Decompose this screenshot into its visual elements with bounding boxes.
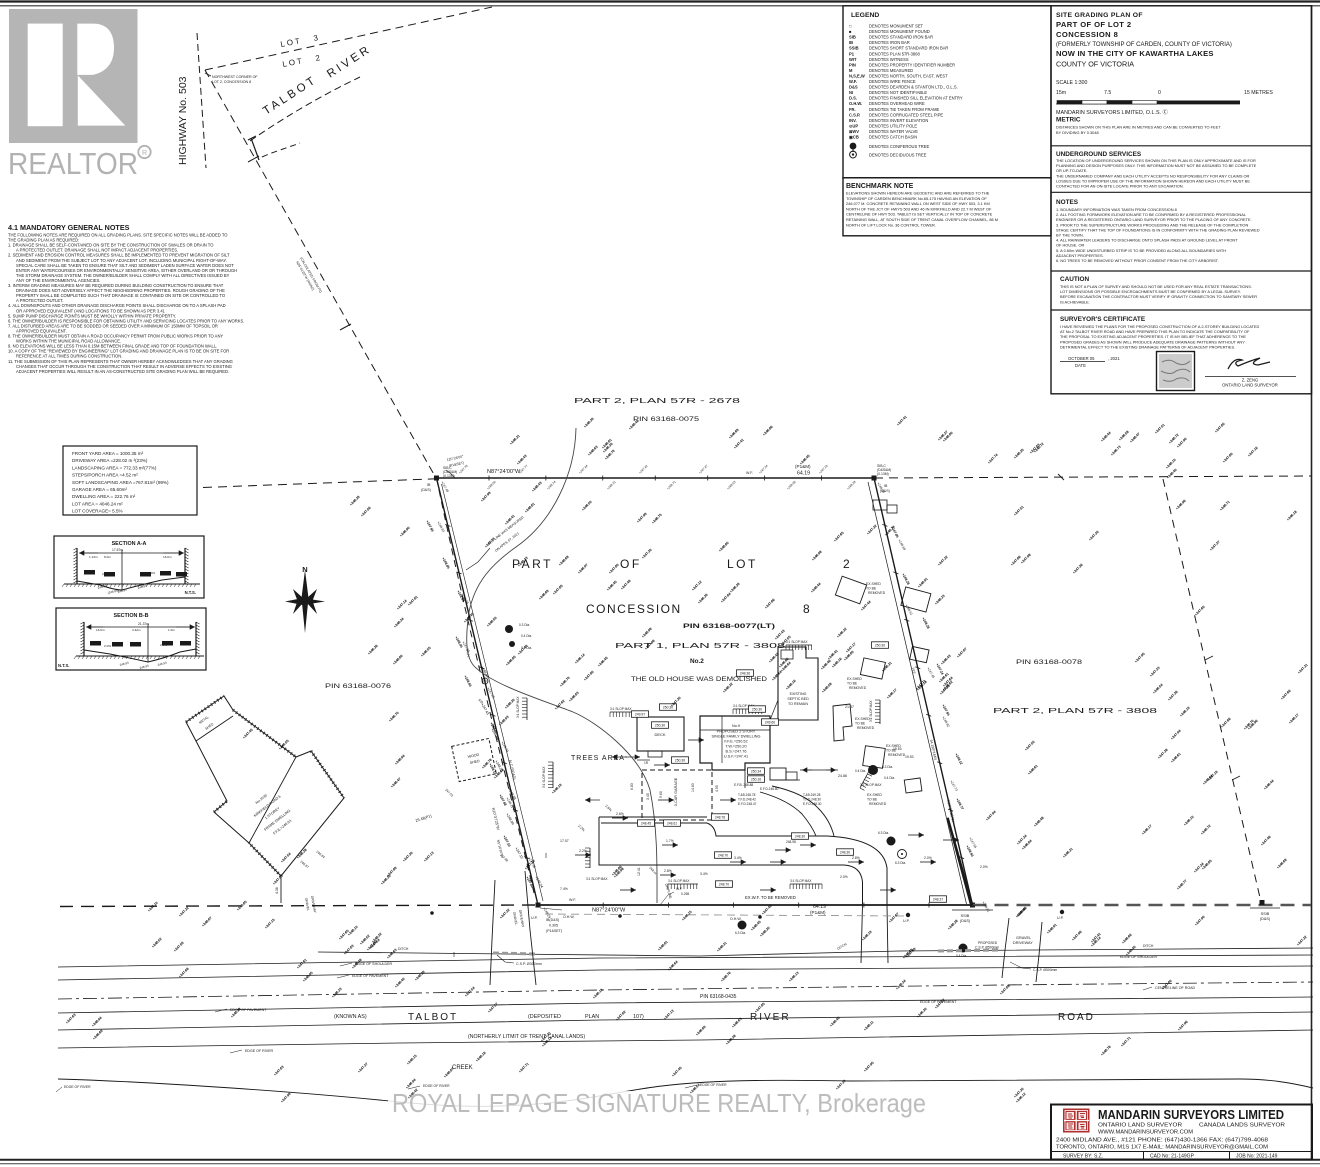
svg-text:+247.32: +247.32 xyxy=(499,908,511,920)
svg-text:250.16: 250.16 xyxy=(751,778,761,782)
svg-text:2.2%: 2.2% xyxy=(579,849,587,853)
svg-text:+248.28: +248.28 xyxy=(947,919,959,931)
svg-text:+248.98: +248.98 xyxy=(613,867,625,879)
svg-text:25.48(P1): 25.48(P1) xyxy=(415,814,433,823)
svg-text:+247.77: +247.77 xyxy=(518,464,529,475)
svg-text:CONCESSION 8: CONCESSION 8 xyxy=(1056,30,1118,39)
svg-text:+248.48: +248.48 xyxy=(1033,816,1045,828)
svg-text:UNDERGROUND SERVICES: UNDERGROUND SERVICES xyxy=(1056,151,1142,158)
svg-text:+247.73: +247.73 xyxy=(949,780,959,793)
svg-text:+247.90: +247.90 xyxy=(1194,915,1206,927)
svg-text:TO BE: TO BE xyxy=(847,682,858,686)
svg-text:+248.16: +248.16 xyxy=(831,657,843,669)
svg-text:19.53: 19.53 xyxy=(893,747,902,751)
svg-text:M: M xyxy=(849,68,853,73)
svg-text:B.S.=247.76: B.S.=247.76 xyxy=(725,750,746,754)
svg-text:BY DIVIDING BY 0.3048: BY DIVIDING BY 0.3048 xyxy=(1056,130,1099,135)
svg-text:DRIVEWAY: DRIVEWAY xyxy=(518,909,525,928)
svg-text:+246.20: +246.20 xyxy=(916,1007,928,1019)
svg-text:TALBOT: TALBOT xyxy=(261,74,319,118)
svg-text:□: □ xyxy=(849,24,852,29)
svg-text:+246.26: +246.26 xyxy=(367,644,379,656)
svg-text:+248.72: +248.72 xyxy=(1200,824,1212,836)
svg-text:1.0m: 1.0m xyxy=(168,628,175,632)
svg-text:0.3 Dia.: 0.3 Dia. xyxy=(519,623,530,627)
svg-text:+247.60: +247.60 xyxy=(1194,605,1206,617)
svg-text:+246.22: +246.22 xyxy=(836,627,848,639)
svg-text:DITCH: DITCH xyxy=(398,947,409,951)
svg-text:WOOD: WOOD xyxy=(467,753,480,759)
svg-text:EDGE OF RIVER: EDGE OF RIVER xyxy=(700,1083,727,1087)
svg-text:+247.44: +247.44 xyxy=(860,600,872,612)
svg-text:DENOTES PLAN 57R-3808: DENOTES PLAN 57R-3808 xyxy=(869,51,920,56)
svg-text:6.83: 6.83 xyxy=(630,783,634,790)
svg-text:+247.51: +247.51 xyxy=(1154,423,1166,435)
svg-text:+248.69: +248.69 xyxy=(897,539,907,552)
svg-text:21.37: 21.37 xyxy=(845,705,854,709)
svg-text:248.98: 248.98 xyxy=(786,840,796,844)
svg-text:2.8%: 2.8% xyxy=(664,869,672,873)
svg-text:+247.37: +247.37 xyxy=(357,1062,369,1074)
svg-text:SSIB: SSIB xyxy=(1261,912,1270,916)
svg-text:2.2%: 2.2% xyxy=(577,824,585,832)
svg-text:+248.31: +248.31 xyxy=(606,480,617,491)
svg-text:ELEVATIONS SHOWN HEREON ARE GE: ELEVATIONS SHOWN HEREON ARE GEODETIC AND… xyxy=(846,191,990,196)
svg-text:C.S.P. Ø500mm: C.S.P. Ø500mm xyxy=(975,946,999,950)
svg-text:INV.: INV. xyxy=(849,118,857,123)
svg-text:+247.80: +247.80 xyxy=(583,670,595,682)
svg-text:E.F.D.248.30: E.F.D.248.30 xyxy=(803,802,822,806)
svg-text:+246.15: +246.15 xyxy=(681,910,693,922)
svg-text:EX.SHED: EX.SHED xyxy=(847,677,862,681)
svg-text:REALTOR: REALTOR xyxy=(8,146,138,181)
svg-text:3.4%: 3.4% xyxy=(700,872,708,876)
svg-text:+248.71: +248.71 xyxy=(1219,500,1231,512)
svg-text:SHED: SHED xyxy=(469,759,480,765)
svg-text:+247.95: +247.95 xyxy=(272,874,284,886)
svg-text:246.93: 246.93 xyxy=(139,664,149,670)
svg-text:16.0m: 16.0m xyxy=(96,628,105,632)
svg-text:+247.85: +247.85 xyxy=(552,584,564,596)
svg-text:O.H.W.: O.H.W. xyxy=(563,915,575,919)
svg-text:ONTARIO LAND SURVEYOR: ONTARIO LAND SURVEYOR xyxy=(1098,1123,1182,1129)
svg-text:+248.34: +248.34 xyxy=(393,617,405,629)
svg-text:MANDARIN SURVEYORS LIMITED, O.: MANDARIN SURVEYORS LIMITED, O.L.S. Ⓒ xyxy=(1056,108,1169,116)
svg-text:DECK: DECK xyxy=(654,732,665,737)
svg-text:+248.39: +248.39 xyxy=(583,417,595,429)
svg-text:24.86: 24.86 xyxy=(838,774,847,778)
svg-text:+246.13: +246.13 xyxy=(788,971,800,983)
svg-text:+248.95: +248.95 xyxy=(302,971,314,983)
svg-text:+247.23: +247.23 xyxy=(939,684,951,696)
svg-text:METAL: METAL xyxy=(198,715,209,725)
svg-text:FR.: FR. xyxy=(849,107,856,112)
svg-text:+247.83: +247.83 xyxy=(343,944,355,956)
svg-text:PIN 63168-0075: PIN 63168-0075 xyxy=(633,416,699,423)
svg-text:+247.49: +247.49 xyxy=(620,579,632,591)
svg-text:DENOTES OVERHEAD WIRE: DENOTES OVERHEAD WIRE xyxy=(869,101,925,106)
svg-text:+248.16: +248.16 xyxy=(785,679,797,691)
svg-text:GRAVEL: GRAVEL xyxy=(512,911,518,925)
svg-text:+248.85: +248.85 xyxy=(236,900,248,912)
svg-text:No.9: No.9 xyxy=(732,724,740,728)
svg-text:+247.50: +247.50 xyxy=(1024,740,1036,752)
svg-text:W.F.: W.F. xyxy=(746,471,753,475)
svg-text:3:1 SLOP MAX: 3:1 SLOP MAX xyxy=(869,700,873,722)
svg-text:+248.28: +248.28 xyxy=(901,573,910,586)
svg-text:4.42m: 4.42m xyxy=(132,628,141,632)
svg-text:+248.80: +248.80 xyxy=(392,654,404,666)
svg-text:E.F.D.248.80: E.F.D.248.80 xyxy=(760,787,779,791)
svg-text:+247.54: +247.54 xyxy=(464,986,476,998)
svg-text:+248.28: +248.28 xyxy=(846,480,857,491)
svg-text:+248.16: +248.16 xyxy=(475,1051,487,1063)
svg-text:N,S,E,W: N,S,E,W xyxy=(849,73,865,78)
svg-text:REMOVED: REMOVED xyxy=(849,686,867,690)
svg-text:+248.69: +248.69 xyxy=(786,480,797,491)
svg-text:246.077 M. CONCRETE RETAINING: 246.077 M. CONCRETE RETAINING WALL ON WE… xyxy=(846,201,990,206)
svg-text:250.30: 250.30 xyxy=(655,724,665,728)
svg-text:+246.45: +246.45 xyxy=(606,580,618,592)
svg-text:EDGE OF RIVER: EDGE OF RIVER xyxy=(64,1085,91,1089)
svg-text:, 2021: , 2021 xyxy=(1108,356,1120,361)
svg-text:MANDARIN SURVEYORS LIMITED: MANDARIN SURVEYORS LIMITED xyxy=(1098,1108,1284,1122)
svg-text:+247.24: +247.24 xyxy=(758,464,769,475)
svg-text:+248.40: +248.40 xyxy=(394,977,406,989)
svg-text:+246.39: +246.39 xyxy=(729,582,741,594)
svg-text:T.&B.248.78: T.&B.248.78 xyxy=(738,793,756,797)
svg-text:+246.96: +246.96 xyxy=(1175,499,1187,511)
svg-text:+248.66: +248.66 xyxy=(463,675,472,688)
svg-text:EX.SHED: EX.SHED xyxy=(866,582,881,586)
svg-text:PROPOSED: PROPOSED xyxy=(978,941,998,945)
svg-text:+247.59: +247.59 xyxy=(425,520,434,533)
svg-text:2.6%: 2.6% xyxy=(616,812,624,816)
svg-text:PART 2, PLAN 57R - 267: PART 2, PLAN 57R - 2678 xyxy=(574,396,740,405)
svg-text:LEGEND: LEGEND xyxy=(851,12,879,19)
svg-text:+247.22: +247.22 xyxy=(178,906,190,918)
svg-text:+248.56: +248.56 xyxy=(486,480,497,491)
svg-text:+247.51: +247.51 xyxy=(1013,505,1025,517)
svg-text:2400 MIDLAND AVE., #121: 2400 MIDLAND AVE., #121 PHONE: (647)430-… xyxy=(1056,1138,1268,1144)
svg-text:FRONT YARD AREA = 1000.35 m²: FRONT YARD AREA = 1000.35 m² xyxy=(72,451,144,456)
svg-text:4.38: 4.38 xyxy=(275,887,279,894)
svg-text:+248.25: +248.25 xyxy=(1013,448,1025,460)
svg-text:3:1 SLOP MAX: 3:1 SLOP MAX xyxy=(610,707,632,711)
svg-text:(P1&M): (P1&M) xyxy=(795,464,811,469)
svg-text:3-CAR GARAGE: 3-CAR GARAGE xyxy=(674,777,678,806)
svg-text:SINGLE FAMILY DWELLING: SINGLE FAMILY DWELLING xyxy=(711,735,760,739)
svg-text:2: 2 xyxy=(843,557,850,571)
svg-text:+248.44: +248.44 xyxy=(810,582,822,594)
svg-text:CANADA LANDS SURVEYOR: CANADA LANDS SURVEYOR xyxy=(1199,1123,1285,1129)
svg-text:D.S.: D.S. xyxy=(849,96,857,101)
svg-text:No.3530: No.3530 xyxy=(255,793,268,805)
svg-text:C.S.P. Ø300mm: C.S.P. Ø300mm xyxy=(516,962,542,966)
svg-text:DRIPLINE: DRIPLINE xyxy=(664,883,673,900)
svg-text:15 METRES: 15 METRES xyxy=(1244,90,1273,96)
svg-text:+246.50: +246.50 xyxy=(581,500,593,512)
svg-text:⊙UP: ⊙UP xyxy=(849,123,858,128)
svg-text:3:1 SLOP MAX: 3:1 SLOP MAX xyxy=(860,783,882,787)
svg-text:+246.21: +246.21 xyxy=(881,661,893,673)
svg-text:+247.66: +247.66 xyxy=(1280,689,1292,701)
svg-text:WWW.MANDARINSURVEYOR.COM: WWW.MANDARINSURVEYOR.COM xyxy=(1098,1130,1193,1136)
svg-text:EX.SHED: EX.SHED xyxy=(867,793,882,797)
svg-text:T.F.D.248.30: T.F.D.248.30 xyxy=(803,798,821,802)
svg-text:+246.63: +246.63 xyxy=(386,948,398,960)
svg-text:+248.14: +248.14 xyxy=(1090,936,1102,948)
svg-text:+247.94: +247.94 xyxy=(1170,729,1182,741)
svg-text:+248.71: +248.71 xyxy=(666,480,677,491)
svg-text:+246.61: +246.61 xyxy=(1170,752,1182,764)
svg-text:+246.73: +246.73 xyxy=(1110,445,1122,457)
svg-text:+246.21: +246.21 xyxy=(509,434,521,446)
svg-text:REMOVED: REMOVED xyxy=(857,726,875,730)
svg-text:+246.43: +246.43 xyxy=(940,654,952,666)
svg-text:DENOTES DEARDEN & STANTON LTD.: DENOTES DEARDEN & STANTON LTD., O.L.S. xyxy=(869,85,958,90)
svg-text:+247.47: +247.47 xyxy=(698,464,709,475)
svg-text:DENOTES NOT IDENTIFIABLE: DENOTES NOT IDENTIFIABLE xyxy=(869,90,927,95)
svg-text:+246.45: +246.45 xyxy=(597,656,609,668)
svg-text:DISTANCES SHOWN ON THIS PLAN A: DISTANCES SHOWN ON THIS PLAN ARE IN METR… xyxy=(1056,125,1221,130)
svg-text:DENOTES DECIDUOUS TREE: DENOTES DECIDUOUS TREE xyxy=(869,153,927,158)
svg-text:EDGE OF RIVER: EDGE OF RIVER xyxy=(245,1049,274,1053)
svg-text:SURVEY BY: S.Z.: SURVEY BY: S.Z. xyxy=(1063,1154,1103,1160)
svg-text:3:1 SLOP MAX: 3:1 SLOP MAX xyxy=(790,879,812,883)
svg-text:DRIVEWAY: DRIVEWAY xyxy=(1013,941,1033,945)
svg-text:CONCESSION: CONCESSION xyxy=(586,602,682,616)
svg-text:LOT: LOT xyxy=(727,557,758,571)
svg-text:DITCH: DITCH xyxy=(1143,944,1154,948)
svg-text:PART OF OF LOT 2: PART OF OF LOT 2 xyxy=(1056,20,1131,29)
svg-text:3: 3 xyxy=(313,33,320,43)
svg-text:+248.93: +248.93 xyxy=(498,715,510,727)
svg-text:U.S.F.=247.41: U.S.F.=247.41 xyxy=(724,755,748,759)
svg-text:247.03: 247.03 xyxy=(444,788,454,798)
svg-text:+247.77: +247.77 xyxy=(484,537,496,549)
svg-text:+247.14: +247.14 xyxy=(396,599,408,611)
svg-text:+247.15: +247.15 xyxy=(264,918,276,930)
svg-text:14.63: 14.63 xyxy=(691,783,695,792)
svg-text:DENOTES CONIFEROUS TREE: DENOTES CONIFEROUS TREE xyxy=(869,144,929,149)
svg-text:TALBOT: TALBOT xyxy=(408,1012,458,1023)
svg-text:+247.65: +247.65 xyxy=(833,531,845,543)
svg-text:+247.19: +247.19 xyxy=(1207,770,1219,782)
svg-text:U.P.: U.P. xyxy=(531,916,538,920)
svg-text:DENOTES MONUMENT SET: DENOTES MONUMENT SET xyxy=(869,24,924,29)
svg-text:+248.91: +248.91 xyxy=(917,577,929,589)
svg-text:1.13m: 1.13m xyxy=(89,555,98,559)
svg-text:+246.47: +246.47 xyxy=(390,777,402,789)
svg-text:+247.19: +247.19 xyxy=(818,464,829,475)
svg-text:+246.97: +246.97 xyxy=(577,563,589,575)
svg-text:+248.17: +248.17 xyxy=(1288,713,1300,725)
svg-text:W.F.: W.F. xyxy=(849,79,857,84)
svg-text:8.0m: 8.0m xyxy=(104,555,111,559)
svg-text:+247.63: +247.63 xyxy=(65,1013,77,1025)
svg-text:3:1 SLOP MAX: 3:1 SLOP MAX xyxy=(586,877,608,881)
svg-text:(P1&SET): (P1&SET) xyxy=(546,929,562,933)
svg-text:+247.88: +247.88 xyxy=(999,984,1011,996)
svg-text:+247.87: +247.87 xyxy=(956,647,968,659)
svg-text:LOT AREA = 4046.24 m²: LOT AREA = 4046.24 m² xyxy=(72,501,123,506)
svg-text:6. NO TREES TO BE REMOVED WITH: 6. NO TREES TO BE REMOVED WITHOUT PRIOR … xyxy=(1056,258,1219,263)
svg-text:+248.77: +248.77 xyxy=(955,798,964,811)
svg-text:N5°16'10"W: N5°16'10"W xyxy=(496,839,504,858)
svg-text:PIN: PIN xyxy=(849,62,856,67)
svg-text:+247.96: +247.96 xyxy=(1071,930,1083,942)
svg-text:+246.10: +246.10 xyxy=(1183,815,1195,827)
svg-text:+246.75: +246.75 xyxy=(651,513,663,525)
svg-text:+248.98: +248.98 xyxy=(641,627,653,639)
svg-text:249.60: 249.60 xyxy=(765,721,775,725)
svg-text:15m: 15m xyxy=(1056,90,1066,96)
svg-text:+248.50: +248.50 xyxy=(486,616,498,628)
svg-text:(P1&M): (P1&M) xyxy=(810,910,826,915)
svg-text:+246.69: +246.69 xyxy=(728,428,740,440)
svg-text:250.30: 250.30 xyxy=(875,644,885,648)
svg-text:+248.23: +248.23 xyxy=(934,594,946,606)
svg-text:W.F.: W.F. xyxy=(569,898,576,902)
svg-text:+248.82: +248.82 xyxy=(941,716,951,729)
svg-text:9.60: 9.60 xyxy=(659,791,663,798)
svg-text:248.36: 248.36 xyxy=(740,672,750,676)
svg-text:248.70: 248.70 xyxy=(718,854,728,858)
svg-text:+248.31: +248.31 xyxy=(716,941,728,953)
svg-text:21.37m: 21.37m xyxy=(138,622,149,626)
svg-text:+248.43: +248.43 xyxy=(516,454,528,466)
svg-text:+247.16: +247.16 xyxy=(502,835,511,848)
svg-text:E.F.B. 248.88: E.F.B. 248.88 xyxy=(734,783,753,787)
svg-text:+247.57: +247.57 xyxy=(487,1002,499,1014)
svg-text:+247.96: +247.96 xyxy=(1177,1020,1189,1032)
svg-text:2.0%: 2.0% xyxy=(924,856,932,860)
svg-text:+247.22: +247.22 xyxy=(937,555,949,567)
svg-text:+247.49: +247.49 xyxy=(440,481,450,494)
svg-text:3:1 SLOP MAX: 3:1 SLOP MAX xyxy=(786,640,808,644)
svg-text:DRIVEWAY: DRIVEWAY xyxy=(310,895,317,913)
svg-text:GRAVEL: GRAVEL xyxy=(304,897,310,911)
svg-text:+248.87: +248.87 xyxy=(201,916,213,928)
svg-text:ROAD: ROAD xyxy=(1058,1012,1095,1023)
svg-text:+247.33: +247.33 xyxy=(1149,666,1161,678)
svg-text:+248.76: +248.76 xyxy=(720,971,732,983)
svg-text:+248.43: +248.43 xyxy=(531,481,543,493)
svg-text:+247.12: +247.12 xyxy=(691,580,703,592)
svg-text:64.19: 64.19 xyxy=(797,471,810,477)
svg-text:D&S: D&S xyxy=(849,85,858,90)
svg-text:+246.69: +246.69 xyxy=(92,1029,104,1041)
svg-text:2.0%: 2.0% xyxy=(840,875,848,879)
svg-text:+246.55: +246.55 xyxy=(420,646,432,658)
svg-text:JOB No: 2021-149: JOB No: 2021-149 xyxy=(1236,1154,1278,1160)
svg-text:+247.44: +247.44 xyxy=(578,464,589,475)
svg-text:N.T.S.: N.T.S. xyxy=(58,663,69,668)
svg-text:+248.87: +248.87 xyxy=(443,1067,455,1079)
svg-text:DENOTES STANDARD IRON BAR: DENOTES STANDARD IRON BAR xyxy=(869,35,933,40)
svg-text:2.0%: 2.0% xyxy=(980,865,988,869)
svg-text:EX.W.F. TO BE REMOVED: EX.W.F. TO BE REMOVED xyxy=(745,895,796,900)
svg-text:COUNTY OF VICTORIA: COUNTY OF VICTORIA xyxy=(1056,60,1134,69)
svg-text:+247.66: +247.66 xyxy=(1220,717,1232,729)
svg-text:(D&S): (D&S) xyxy=(421,488,431,492)
svg-text:+248.72: +248.72 xyxy=(1033,442,1045,454)
svg-text:+248.29: +248.29 xyxy=(349,495,361,507)
svg-text:7.4%: 7.4% xyxy=(560,887,568,891)
svg-text:3:1 SLOP MAX: 3:1 SLOP MAX xyxy=(542,766,546,788)
svg-text:EDGE OF PAVEMENT: EDGE OF PAVEMENT xyxy=(352,974,389,978)
svg-text:U.P.: U.P. xyxy=(903,919,910,923)
svg-text:■: ■ xyxy=(849,29,852,34)
svg-text:IB: IB xyxy=(427,483,431,487)
svg-text:+247.45: +247.45 xyxy=(242,728,254,740)
svg-text:+248.58: +248.58 xyxy=(821,682,833,694)
svg-text:PROPOSED 2 STORY: PROPOSED 2 STORY xyxy=(717,730,756,734)
svg-text:RIVER: RIVER xyxy=(325,43,374,80)
svg-text:+247.61: +247.61 xyxy=(296,958,308,970)
svg-text:248.45: 248.45 xyxy=(641,822,651,826)
svg-text:CENTRELINE OF HWY 503. TABLET: CENTRELINE OF HWY 503. TABLET IS SET VER… xyxy=(846,212,993,217)
svg-text:+246.18: +246.18 xyxy=(1286,510,1298,522)
svg-text:+248.34: +248.34 xyxy=(895,979,907,991)
svg-text:DENOTES INVERT ELEVATION: DENOTES INVERT ELEVATION xyxy=(869,118,928,123)
svg-text:+247.99: +247.99 xyxy=(480,491,492,503)
svg-text:+248.61: +248.61 xyxy=(1027,764,1039,776)
svg-text:+248.22: +248.22 xyxy=(722,682,734,694)
svg-text:4.1 MANDATORY GENERAL NOTES: 4.1 MANDATORY GENERAL NOTES xyxy=(8,223,130,232)
svg-text:250.30: 250.30 xyxy=(675,759,685,763)
svg-text:3:1 SLOP MAX: 3:1 SLOP MAX xyxy=(516,696,520,718)
svg-text:+246.68: +246.68 xyxy=(1276,858,1288,870)
svg-text:+246.85: +246.85 xyxy=(505,655,517,667)
svg-text:LOT 2, CONCESSION 8: LOT 2, CONCESSION 8 xyxy=(212,80,251,84)
svg-text:ONTARIO LAND SURVEYOR: ONTARIO LAND SURVEYOR xyxy=(1222,383,1278,388)
svg-text:F.F.E.=250.52: F.F.E.=250.52 xyxy=(724,740,747,744)
svg-text:+248.19: +248.19 xyxy=(592,988,604,1000)
svg-text:LOT COVERAGE= 5.5%: LOT COVERAGE= 5.5% xyxy=(72,509,123,514)
svg-text:+248.81: +248.81 xyxy=(981,901,991,914)
svg-text:+247.83: +247.83 xyxy=(273,1065,285,1077)
svg-text:0.4 Dia.: 0.4 Dia. xyxy=(884,776,895,780)
svg-text:(0.13M): (0.13M) xyxy=(877,472,889,476)
svg-text:+247.42: +247.42 xyxy=(638,464,649,475)
svg-text:METRIC: METRIC xyxy=(1056,117,1081,124)
svg-text:SECTION A-A: SECTION A-A xyxy=(112,541,147,547)
svg-text:+247.71: +247.71 xyxy=(518,1062,530,1074)
svg-text:W.F.: W.F. xyxy=(676,887,682,891)
svg-text:+247.90: +247.90 xyxy=(1176,437,1188,449)
svg-text:DENOTES WITNESS: DENOTES WITNESS xyxy=(869,57,909,62)
svg-text:6.3 Dia.: 6.3 Dia. xyxy=(735,931,746,935)
svg-text:+247.30: +247.30 xyxy=(641,548,653,560)
svg-text:THE OLD HOUSE WAS DEMOLISH: THE OLD HOUSE WAS DEMOLISHED xyxy=(631,676,767,683)
svg-text:STAGE CERTIFY THAT THE TOP OF: STAGE CERTIFY THAT THE TOP OF FOUNDATION… xyxy=(1056,227,1260,232)
svg-text:+248.81: +248.81 xyxy=(524,502,536,514)
svg-text:REMOVED: REMOVED xyxy=(869,802,887,806)
svg-text:+248.48: +248.48 xyxy=(628,419,640,431)
svg-text:⊠WV: ⊠WV xyxy=(849,129,859,134)
svg-text:+247.80: +247.80 xyxy=(1214,422,1226,434)
svg-text:(NORTHERLY LITMIT OF: (NORTHERLY LITMIT OF TRENT CANAL LANDS) xyxy=(468,1034,585,1040)
svg-text:LOT: LOT xyxy=(280,36,303,49)
svg-text:DWELLING AREA = 222.76 m²: DWELLING AREA = 222.76 m² xyxy=(72,494,136,499)
svg-text:249.97: 249.97 xyxy=(635,713,645,717)
svg-text:NI: NI xyxy=(849,90,853,95)
svg-text:TO BE: TO BE xyxy=(855,722,866,726)
svg-text:+246.70: +246.70 xyxy=(388,711,400,723)
svg-text:+247.95: +247.95 xyxy=(1134,652,1146,664)
